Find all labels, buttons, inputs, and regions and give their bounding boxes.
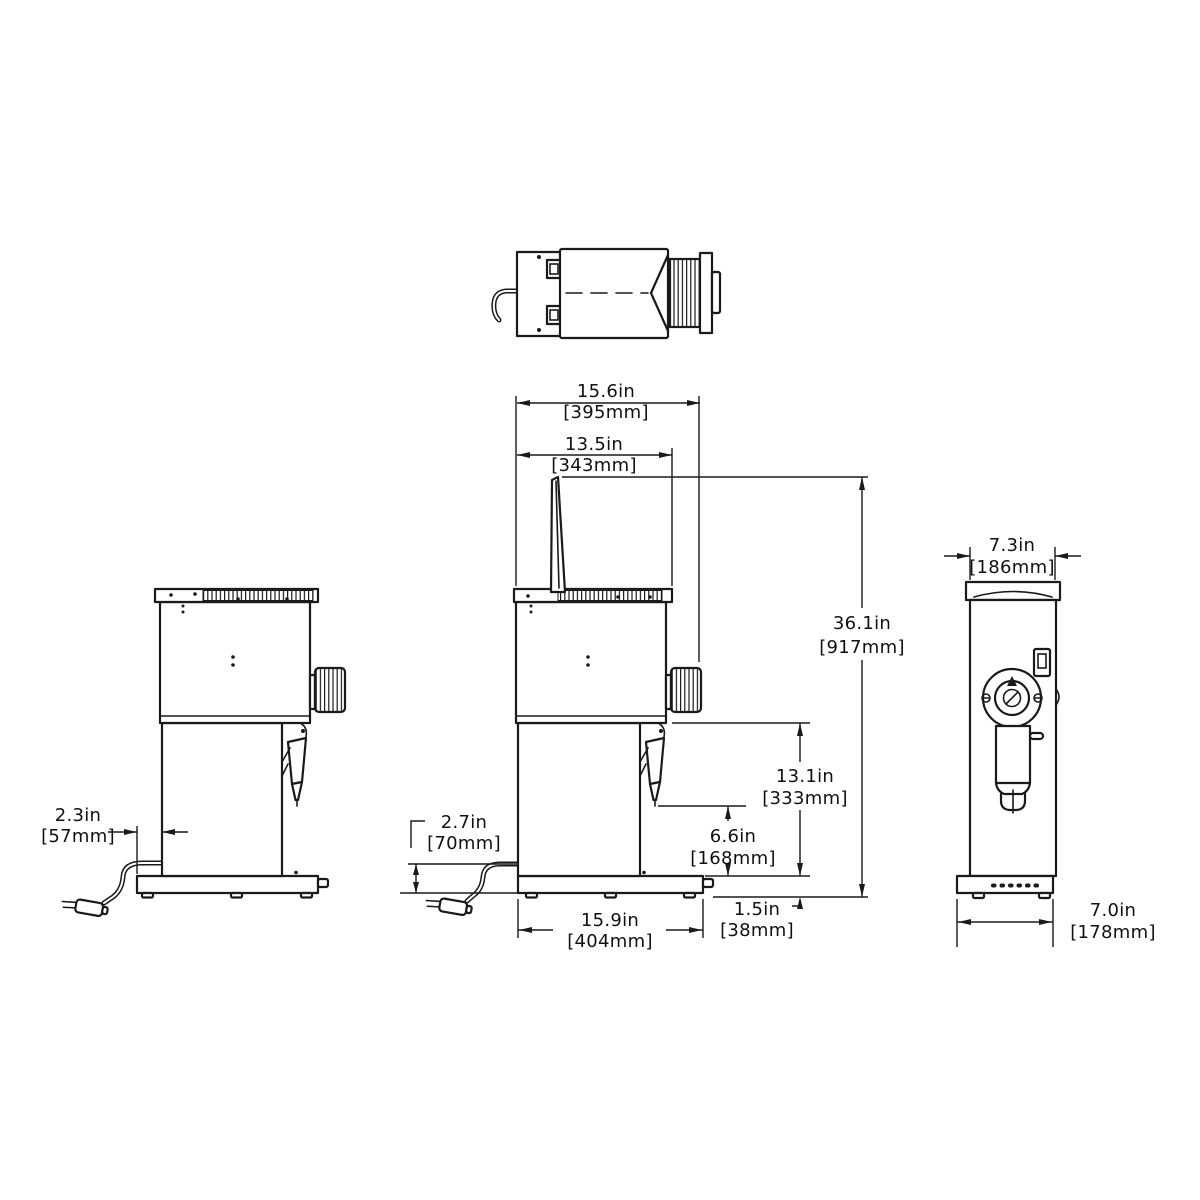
dim-body-depth-mm: [343mm]: [551, 455, 637, 476]
dim-base-height-mm: [38mm]: [720, 920, 794, 941]
dim-cord-height-mm: [70mm]: [427, 833, 501, 854]
dim-spout-clearance-mm: [168mm]: [690, 848, 776, 869]
dim-base-depth: 15.9in [404mm]: [518, 899, 703, 952]
dim-cord-height: 2.7in [70mm]: [400, 812, 518, 893]
left-funnel: [282, 723, 306, 806]
dim-chamber-height-mm: [333mm]: [762, 788, 848, 809]
dim-overall-width-in: 7.3in: [989, 535, 1036, 556]
front-view: [957, 582, 1060, 898]
dim-chamber-height-in: 13.1in: [776, 766, 834, 787]
dim-base-height: 1.5in [38mm]: [720, 897, 803, 941]
center-adjust-knob: [666, 668, 701, 712]
dim-base-width: 7.0in [178mm]: [957, 899, 1156, 947]
side-view-lid-closed: [61, 589, 345, 917]
dim-rear-overhang-in: 2.3in: [55, 805, 102, 826]
top-view-power-cord: [494, 291, 518, 320]
center-power-cord: [425, 864, 518, 916]
left-lid-hatch: [203, 591, 313, 601]
dim-overall-height-in: 36.1in: [833, 613, 891, 634]
dim-overall-depth-mm: [395mm]: [563, 402, 649, 423]
left-pedestal: [162, 723, 282, 876]
dim-overall-width: 7.3in [186mm]: [944, 535, 1081, 580]
left-hopper: [160, 602, 310, 723]
top-view-tab: [712, 272, 720, 313]
front-switch: [1034, 649, 1050, 676]
center-base: [518, 876, 703, 893]
center-lid-hatch: [558, 591, 662, 601]
dim-rear-overhang-mm: [57mm]: [41, 826, 115, 847]
dim-overall-height-mm: [917mm]: [819, 637, 905, 658]
center-pedestal: [518, 723, 640, 876]
dim-overall-width-mm: [186mm]: [969, 557, 1055, 578]
center-hopper: [516, 602, 666, 723]
center-funnel: [640, 723, 664, 806]
dim-base-depth-mm: [404mm]: [567, 931, 653, 952]
technical-drawing: 15.6in [395mm] 13.5in [343mm] 36.1in [91…: [0, 0, 1200, 1200]
front-bag-hook: [1030, 733, 1043, 739]
dim-body-depth: 13.5in [343mm]: [517, 434, 672, 586]
top-view: [494, 249, 720, 338]
dim-base-height-in: 1.5in: [734, 899, 781, 920]
left-adjust-knob: [310, 668, 345, 712]
dim-base-width-in: 7.0in: [1090, 900, 1137, 921]
left-base: [137, 876, 318, 893]
dim-overall-depth-in: 15.6in: [577, 381, 635, 402]
left-base-tab: [318, 879, 328, 887]
dim-spout-clearance-in: 6.6in: [710, 826, 757, 847]
dim-spout-clearance: 6.6in [168mm]: [658, 806, 786, 876]
dim-body-depth-in: 13.5in: [565, 434, 623, 455]
top-view-knurled-band: [670, 259, 700, 327]
spec-sheet-page: 15.6in [395mm] 13.5in [343mm] 36.1in [91…: [0, 0, 1200, 1200]
center-plug: [425, 896, 473, 917]
dim-cord-height-in: 2.7in: [441, 812, 488, 833]
top-view-end-cap: [700, 253, 712, 333]
front-dial: [982, 669, 1042, 727]
dim-base-depth-in: 15.9in: [581, 910, 639, 931]
left-plug: [61, 897, 109, 918]
dim-base-width-mm: [178mm]: [1070, 922, 1156, 943]
center-base-tab: [703, 879, 713, 887]
